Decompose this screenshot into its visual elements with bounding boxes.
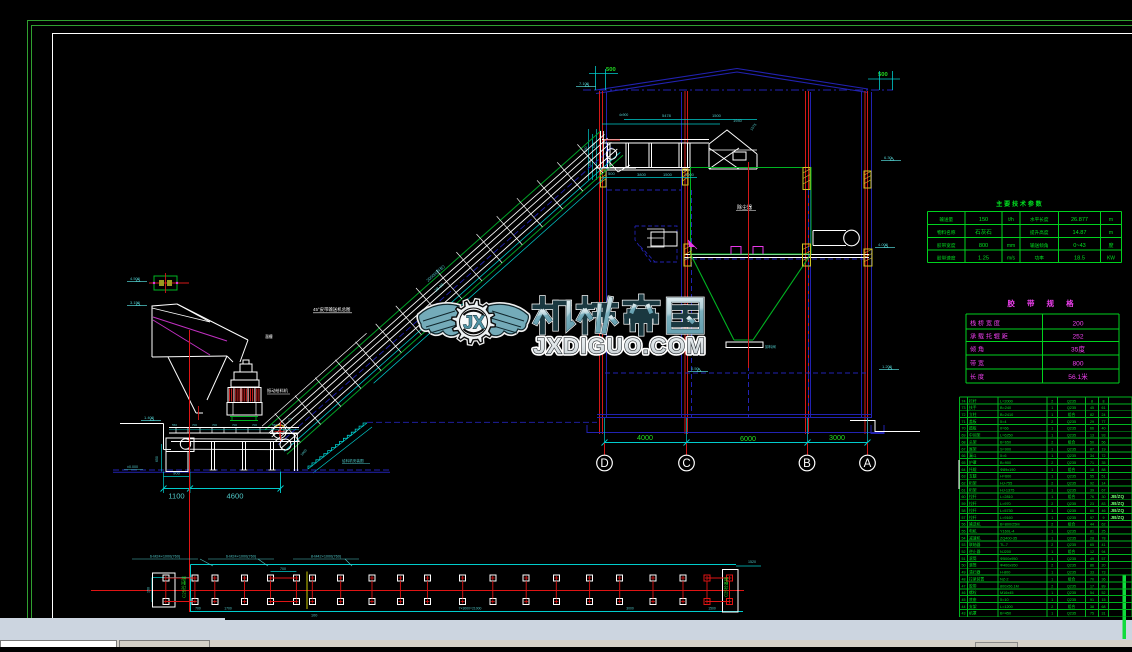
svg-text:75: 75 xyxy=(1090,612,1094,616)
svg-text:51: 51 xyxy=(1102,475,1106,479)
svg-text:KW: KW xyxy=(1107,256,1115,262)
svg-text:13: 13 xyxy=(1090,434,1094,438)
svg-text:2: 2 xyxy=(1051,482,1053,486)
svg-text:7×3000=21000: 7×3000=21000 xyxy=(459,607,482,611)
svg-text:1: 1 xyxy=(1051,475,1053,479)
svg-text:56: 56 xyxy=(1102,440,1106,444)
svg-text:组合: 组合 xyxy=(1068,494,1076,499)
svg-text:63: 63 xyxy=(962,475,966,479)
svg-text:81: 81 xyxy=(1090,529,1094,533)
svg-text:28: 28 xyxy=(1090,536,1094,540)
svg-text:71: 71 xyxy=(1090,461,1094,465)
svg-text:δ=6: δ=6 xyxy=(1000,454,1006,458)
svg-text:JB/ZQ: JB/ZQ xyxy=(1111,508,1125,513)
svg-text:Q235: Q235 xyxy=(1067,454,1076,458)
svg-text:500: 500 xyxy=(606,67,616,73)
svg-text:86: 86 xyxy=(1090,564,1094,568)
svg-text:72: 72 xyxy=(1102,454,1106,458)
svg-text:56.1米: 56.1米 xyxy=(1068,372,1088,381)
svg-text:65: 65 xyxy=(1090,543,1094,547)
svg-text:踏板: 踏板 xyxy=(969,426,977,431)
svg-text:B=650: B=650 xyxy=(1000,440,1011,444)
svg-text:B=800/25M: B=800/25M xyxy=(1000,523,1020,527)
svg-text:700: 700 xyxy=(195,607,201,611)
svg-text:3000: 3000 xyxy=(626,607,634,611)
svg-text:组合: 组合 xyxy=(1068,576,1076,581)
svg-text:38: 38 xyxy=(1090,605,1094,609)
svg-text:L=2000: L=2000 xyxy=(1000,399,1013,403)
svg-text:输送量: 输送量 xyxy=(939,216,953,223)
svg-text:扶手: 扶手 xyxy=(969,405,977,410)
svg-text:49: 49 xyxy=(1090,557,1094,561)
svg-text:±0.000: ±0.000 xyxy=(127,465,138,469)
svg-text:24: 24 xyxy=(1102,413,1106,417)
svg-text:54: 54 xyxy=(1090,591,1094,595)
svg-text:1: 1 xyxy=(1051,571,1053,575)
svg-text:Q235: Q235 xyxy=(1067,509,1076,513)
svg-text:65: 65 xyxy=(962,461,966,465)
svg-text:17: 17 xyxy=(1090,584,1094,588)
svg-text:逆止器: 逆止器 xyxy=(969,549,981,554)
svg-text:D: D xyxy=(600,458,608,470)
svg-text:1000: 1000 xyxy=(685,172,695,177)
svg-text:1: 1 xyxy=(1051,577,1053,581)
svg-text:溜槽: 溜槽 xyxy=(265,334,273,339)
svg-text:1: 1 xyxy=(1051,591,1053,595)
svg-text:1: 1 xyxy=(1051,447,1053,451)
svg-text:输送倾角: 输送倾角 xyxy=(1030,242,1049,249)
svg-text:1: 1 xyxy=(1051,468,1053,472)
svg-text:立柱: 立柱 xyxy=(969,412,977,417)
svg-text:23: 23 xyxy=(1090,502,1094,506)
svg-text:100: 100 xyxy=(311,614,317,618)
svg-text:1: 1 xyxy=(1051,557,1053,561)
svg-text:B=450: B=450 xyxy=(1000,612,1011,616)
svg-text:物料名称: 物料名称 xyxy=(937,229,956,236)
svg-text:6.30: 6.30 xyxy=(884,155,893,160)
svg-text:主 要 技 术 参 数: 主 要 技 术 参 数 xyxy=(996,200,1043,208)
svg-text:B=2410: B=2410 xyxy=(1000,413,1013,417)
svg-text:62: 62 xyxy=(1102,523,1106,527)
svg-text:组合: 组合 xyxy=(1068,412,1076,417)
svg-text:L=5730: L=5730 xyxy=(1000,509,1013,513)
svg-text:JXDIGUO.COM: JXDIGUO.COM xyxy=(533,334,706,359)
svg-text:14.87: 14.87 xyxy=(1073,230,1087,236)
svg-text:2: 2 xyxy=(1051,399,1053,403)
svg-text:L=9160: L=9160 xyxy=(1000,516,1013,520)
svg-text:Φ500x950: Φ500x950 xyxy=(1000,557,1018,561)
svg-text:组合: 组合 xyxy=(1068,549,1076,554)
svg-text:2: 2 xyxy=(1051,502,1053,506)
svg-text:44: 44 xyxy=(962,605,966,609)
svg-text:0.50: 0.50 xyxy=(691,366,700,371)
svg-text:底座: 底座 xyxy=(969,597,977,602)
svg-text:45: 45 xyxy=(1090,406,1094,410)
svg-text:除尘器: 除尘器 xyxy=(737,204,752,211)
svg-text:HJ-1375: HJ-1375 xyxy=(1000,488,1014,492)
svg-text:150: 150 xyxy=(147,587,151,593)
svg-text:组合: 组合 xyxy=(1068,604,1076,609)
svg-text:6-M24×1000(760): 6-M24×1000(760) xyxy=(150,555,181,559)
svg-text:B=240: B=240 xyxy=(1000,406,1011,410)
svg-text:43: 43 xyxy=(962,612,966,616)
svg-text:25: 25 xyxy=(1102,529,1106,533)
svg-text:1: 1 xyxy=(1051,598,1053,602)
svg-text:50: 50 xyxy=(962,564,966,568)
svg-text:Q235: Q235 xyxy=(1067,584,1076,588)
svg-text:1.25: 1.25 xyxy=(978,256,989,262)
svg-text:89: 89 xyxy=(1102,584,1106,588)
svg-text:500: 500 xyxy=(608,171,615,176)
svg-text:4x900: 4x900 xyxy=(619,113,628,117)
svg-text:Q235: Q235 xyxy=(1067,612,1076,616)
svg-text:m: m xyxy=(1109,217,1113,223)
svg-text:1: 1 xyxy=(1051,509,1053,513)
svg-text:M16x45: M16x45 xyxy=(1000,591,1014,595)
svg-text:252: 252 xyxy=(1072,334,1083,341)
svg-text:800: 800 xyxy=(979,243,988,249)
svg-text:1: 1 xyxy=(1051,495,1053,499)
svg-text:B=900: B=900 xyxy=(1000,461,1011,465)
svg-text:滚筒: 滚筒 xyxy=(969,556,977,561)
svg-text:1: 1 xyxy=(1051,516,1053,520)
svg-text:52: 52 xyxy=(962,550,966,554)
svg-text:55: 55 xyxy=(1090,475,1094,479)
svg-text:34: 34 xyxy=(1090,454,1094,458)
svg-text:19: 19 xyxy=(1102,447,1106,451)
svg-text:700: 700 xyxy=(280,567,286,571)
svg-text:拉杆: 拉杆 xyxy=(969,508,977,513)
svg-text:1700: 1700 xyxy=(224,607,232,611)
svg-text:2: 2 xyxy=(1051,420,1053,424)
svg-text:66: 66 xyxy=(1090,427,1094,431)
svg-text:托辊: 托辊 xyxy=(969,467,977,472)
svg-text:57: 57 xyxy=(1102,557,1106,561)
svg-text:Q235: Q235 xyxy=(1067,502,1076,506)
svg-text:700: 700 xyxy=(232,423,237,427)
svg-text:1: 1 xyxy=(1051,612,1053,616)
svg-text:35: 35 xyxy=(1102,461,1106,465)
svg-text:护罩: 护罩 xyxy=(969,460,977,465)
svg-text:70: 70 xyxy=(1090,577,1094,581)
svg-text:1: 1 xyxy=(1051,454,1053,458)
svg-text:Q235: Q235 xyxy=(1067,598,1076,602)
svg-text:Q235: Q235 xyxy=(1067,447,1076,451)
svg-text:73: 73 xyxy=(962,406,966,410)
svg-text:94: 94 xyxy=(1102,550,1106,554)
svg-text:度: 度 xyxy=(1108,242,1113,249)
svg-text:Q235: Q235 xyxy=(1067,399,1076,403)
svg-text:40: 40 xyxy=(1102,427,1106,431)
svg-text:Q235: Q235 xyxy=(1067,461,1076,465)
svg-text:2: 2 xyxy=(1051,584,1053,588)
svg-text:功率: 功率 xyxy=(1035,255,1045,262)
svg-text:3800: 3800 xyxy=(637,172,647,177)
svg-text:拉紧装置: 拉紧装置 xyxy=(969,576,984,581)
svg-text:700: 700 xyxy=(192,423,197,427)
svg-text:8: 8 xyxy=(1103,399,1105,403)
svg-text:L=2810: L=2810 xyxy=(1000,495,1013,499)
svg-text:Q235: Q235 xyxy=(1067,571,1076,575)
svg-text:51: 51 xyxy=(962,557,966,561)
svg-text:Q235: Q235 xyxy=(1067,557,1076,561)
svg-text:组合: 组合 xyxy=(1068,467,1076,472)
svg-text:53: 53 xyxy=(962,543,966,547)
svg-text:2: 2 xyxy=(1051,605,1053,609)
svg-text:螺栓: 螺栓 xyxy=(969,590,977,595)
svg-text:1520: 1520 xyxy=(748,560,756,564)
svg-text:9: 9 xyxy=(1103,516,1105,520)
svg-text:48: 48 xyxy=(962,577,966,581)
svg-text:δ=66: δ=66 xyxy=(1000,427,1009,431)
svg-text:栏杆: 栏杆 xyxy=(969,398,977,403)
svg-text:T2: T2 xyxy=(288,418,292,422)
svg-text:47: 47 xyxy=(962,584,966,588)
svg-text:68: 68 xyxy=(962,440,966,444)
svg-text:18.5: 18.5 xyxy=(1074,256,1085,262)
svg-text:振动给料机: 振动给料机 xyxy=(267,387,289,394)
svg-text:66: 66 xyxy=(962,454,966,458)
svg-text:Q235: Q235 xyxy=(1067,564,1076,568)
svg-text:68: 68 xyxy=(1102,605,1106,609)
svg-text:59: 59 xyxy=(962,502,966,506)
svg-text:Q235: Q235 xyxy=(1067,536,1076,540)
svg-text:提升高度: 提升高度 xyxy=(1030,229,1049,236)
svg-text:60: 60 xyxy=(1090,509,1094,513)
svg-text:石灰石: 石灰石 xyxy=(975,228,992,236)
svg-text:800x56.1M: 800x56.1M xyxy=(1000,584,1019,588)
svg-text:L=970: L=970 xyxy=(1000,502,1011,506)
svg-text:71: 71 xyxy=(962,420,966,424)
svg-text:m/s: m/s xyxy=(1007,256,1016,262)
svg-text:76: 76 xyxy=(1090,495,1094,499)
svg-text:55: 55 xyxy=(962,529,966,533)
svg-text:水平长度: 水平长度 xyxy=(1030,216,1049,223)
svg-text:61: 61 xyxy=(1102,406,1106,410)
svg-text:电机: 电机 xyxy=(969,528,977,533)
svg-text:73: 73 xyxy=(1102,571,1106,575)
svg-text:胶带: 胶带 xyxy=(969,583,977,588)
svg-text:组合: 组合 xyxy=(1068,522,1076,527)
svg-text:26.877: 26.877 xyxy=(1071,217,1088,223)
svg-text:胶带速度: 胶带速度 xyxy=(937,255,956,262)
svg-text:30: 30 xyxy=(1102,495,1106,499)
svg-text:700: 700 xyxy=(252,423,257,427)
svg-text:胶带宽度: 胶带宽度 xyxy=(937,242,956,249)
svg-text:92: 92 xyxy=(1090,482,1094,486)
svg-text:胶 带 规 格: 胶 带 规 格 xyxy=(1007,298,1078,308)
svg-text:39: 39 xyxy=(1090,488,1094,492)
svg-text:长 度: 长 度 xyxy=(970,373,984,381)
svg-text:倾 角: 倾 角 xyxy=(970,346,984,354)
svg-text:Φ400x950: Φ400x950 xyxy=(1000,564,1018,568)
svg-text:46: 46 xyxy=(962,591,966,595)
svg-text:67: 67 xyxy=(962,447,966,451)
svg-text:NZ-2: NZ-2 xyxy=(1000,577,1008,581)
svg-text:漏斗: 漏斗 xyxy=(969,453,977,458)
svg-text:1: 1 xyxy=(1051,550,1053,554)
svg-text:14: 14 xyxy=(1102,482,1106,486)
svg-text:mm: mm xyxy=(1007,243,1015,249)
svg-text:54: 54 xyxy=(962,536,966,540)
svg-text:0~43: 0~43 xyxy=(1073,243,1086,249)
svg-text:L=6250: L=6250 xyxy=(1000,434,1013,438)
svg-text:Q235: Q235 xyxy=(1067,427,1076,431)
svg-text:70: 70 xyxy=(962,427,966,431)
svg-text:1: 1 xyxy=(1051,413,1053,417)
svg-text:ZQ400-35: ZQ400-35 xyxy=(1000,536,1017,540)
svg-text:15: 15 xyxy=(1102,598,1106,602)
svg-text:12: 12 xyxy=(1090,550,1094,554)
svg-text:41: 41 xyxy=(1102,543,1106,547)
svg-text:HJ-755: HJ-755 xyxy=(1000,482,1012,486)
svg-text:减速机: 减速机 xyxy=(969,535,981,540)
svg-text:头架: 头架 xyxy=(969,439,977,444)
svg-text:1500: 1500 xyxy=(708,607,716,611)
svg-text:Q235: Q235 xyxy=(1067,516,1076,520)
svg-text:δ=10: δ=10 xyxy=(1000,598,1009,602)
svg-text:拉杆: 拉杆 xyxy=(969,494,977,499)
svg-text:2: 2 xyxy=(1051,440,1053,444)
svg-text:1: 1 xyxy=(1051,529,1053,533)
svg-text:Q235: Q235 xyxy=(1067,475,1076,479)
svg-text:88: 88 xyxy=(1102,468,1106,472)
svg-text:机罩: 机罩 xyxy=(969,611,977,616)
svg-text:JB/ZQ: JB/ZQ xyxy=(1111,494,1125,499)
svg-text:Q235: Q235 xyxy=(1067,543,1076,547)
svg-text:Q235: Q235 xyxy=(1067,420,1076,424)
svg-text:1100: 1100 xyxy=(168,492,184,501)
svg-text:52: 52 xyxy=(1102,591,1106,595)
svg-text:800: 800 xyxy=(1072,361,1083,368)
svg-text:栈 桥 宽 度: 栈 桥 宽 度 xyxy=(970,320,1000,328)
svg-text:2: 2 xyxy=(1051,543,1053,547)
svg-text:31: 31 xyxy=(1102,612,1106,616)
svg-text:输送机: 输送机 xyxy=(969,522,981,527)
svg-text:87: 87 xyxy=(1090,447,1094,451)
svg-text:74: 74 xyxy=(962,399,966,403)
svg-text:承 载 托 辊 距: 承 载 托 辊 距 xyxy=(970,333,1008,341)
svg-text:29: 29 xyxy=(1090,420,1094,424)
svg-text:6000: 6000 xyxy=(740,434,756,443)
svg-text:150: 150 xyxy=(979,217,988,223)
svg-text:200: 200 xyxy=(1072,321,1083,328)
svg-text:700: 700 xyxy=(212,423,217,427)
svg-text:H-800: H-800 xyxy=(1000,571,1010,575)
svg-text:JB/ZQ: JB/ZQ xyxy=(1111,501,1125,506)
svg-text:83: 83 xyxy=(1102,502,1106,506)
svg-text:77: 77 xyxy=(1102,420,1106,424)
svg-text:46: 46 xyxy=(1102,509,1106,513)
svg-text:δ=4: δ=4 xyxy=(1000,420,1006,424)
svg-text:550: 550 xyxy=(172,423,177,427)
svg-text:67: 67 xyxy=(1102,488,1106,492)
svg-text:Q235: Q235 xyxy=(1067,406,1076,410)
svg-text:69: 69 xyxy=(962,434,966,438)
svg-text:36: 36 xyxy=(1102,577,1106,581)
svg-text:93: 93 xyxy=(1102,434,1106,438)
svg-text:1: 1 xyxy=(1051,406,1053,410)
svg-text:8-M42×1000(760): 8-M42×1000(760) xyxy=(311,555,342,559)
svg-text:支架: 支架 xyxy=(969,604,977,609)
svg-text:6-M24×1000(760): 6-M24×1000(760) xyxy=(226,555,257,559)
svg-text:1500: 1500 xyxy=(663,172,673,177)
svg-text:S=900: S=900 xyxy=(1000,447,1011,451)
svg-text:B: B xyxy=(803,458,811,470)
svg-text:60: 60 xyxy=(962,495,966,499)
svg-text:1: 1 xyxy=(1051,536,1053,540)
svg-text:盖板: 盖板 xyxy=(969,419,977,424)
svg-text:JX: JX xyxy=(463,313,485,333)
svg-text:联轴器: 联轴器 xyxy=(969,542,981,547)
svg-text:50: 50 xyxy=(1090,440,1094,444)
svg-text:62: 62 xyxy=(962,482,966,486)
svg-text:C: C xyxy=(682,458,690,470)
svg-text:2: 2 xyxy=(1051,523,1053,527)
svg-text:1: 1 xyxy=(1051,427,1053,431)
svg-text:组合: 组合 xyxy=(1068,439,1076,444)
svg-text:56: 56 xyxy=(962,523,966,527)
svg-text:NJ200: NJ200 xyxy=(1000,550,1011,554)
svg-text:C25砼基础: C25砼基础 xyxy=(181,576,188,598)
svg-text:1: 1 xyxy=(1051,434,1053,438)
svg-text:4600: 4600 xyxy=(227,492,244,501)
svg-text:Y160L-4: Y160L-4 xyxy=(1000,529,1014,533)
svg-text:58: 58 xyxy=(962,509,966,513)
svg-text:桁架: 桁架 xyxy=(969,481,977,486)
svg-text:45: 45 xyxy=(962,598,966,602)
svg-text:支腿: 支腿 xyxy=(969,474,977,479)
svg-text:Q235: Q235 xyxy=(1067,434,1076,438)
svg-text:64: 64 xyxy=(962,468,966,472)
svg-text:91: 91 xyxy=(1090,598,1094,602)
svg-text:C25砼基础: C25砼基础 xyxy=(723,577,730,597)
svg-text:4000: 4000 xyxy=(637,433,653,442)
svg-text:550: 550 xyxy=(272,423,277,427)
svg-text:t/h: t/h xyxy=(1008,217,1014,223)
svg-text:L=1200: L=1200 xyxy=(1000,605,1013,609)
svg-text:1940: 1940 xyxy=(733,118,743,123)
svg-text:Q235: Q235 xyxy=(1067,482,1076,486)
svg-text:JB/ZQ: JB/ZQ xyxy=(1111,515,1125,520)
svg-text:82: 82 xyxy=(1090,413,1094,417)
svg-text:1: 1 xyxy=(1051,488,1053,492)
svg-text:Q235: Q235 xyxy=(1067,488,1076,492)
svg-text:57: 57 xyxy=(962,516,966,520)
svg-text:给料机安装图: 给料机安装图 xyxy=(342,458,364,463)
svg-text:拉杆: 拉杆 xyxy=(969,501,977,506)
svg-text:8: 8 xyxy=(1091,399,1093,403)
svg-text:TL-7: TL-7 xyxy=(1000,543,1008,547)
svg-text:1500: 1500 xyxy=(712,113,722,118)
svg-text:桁架: 桁架 xyxy=(969,487,977,492)
svg-text:Q235: Q235 xyxy=(1067,591,1076,595)
svg-text:20: 20 xyxy=(1102,564,1106,568)
svg-text:900: 900 xyxy=(173,471,180,476)
svg-text:清扫器: 清扫器 xyxy=(969,570,981,575)
svg-text:78: 78 xyxy=(1102,536,1106,540)
svg-text:61: 61 xyxy=(962,488,966,492)
svg-text:卸料阀: 卸料阀 xyxy=(765,344,776,349)
svg-text:Φ89x190: Φ89x190 xyxy=(1000,468,1016,472)
svg-text:H=600: H=600 xyxy=(1000,475,1011,479)
svg-text:44: 44 xyxy=(1090,523,1094,527)
svg-text:Q235: Q235 xyxy=(1067,529,1076,533)
svg-text:中间架: 中间架 xyxy=(969,433,981,438)
svg-text:650: 650 xyxy=(155,456,159,462)
svg-text:45°皮带输送机总图: 45°皮带输送机总图 xyxy=(313,306,351,313)
svg-text:2: 2 xyxy=(1051,564,1053,568)
